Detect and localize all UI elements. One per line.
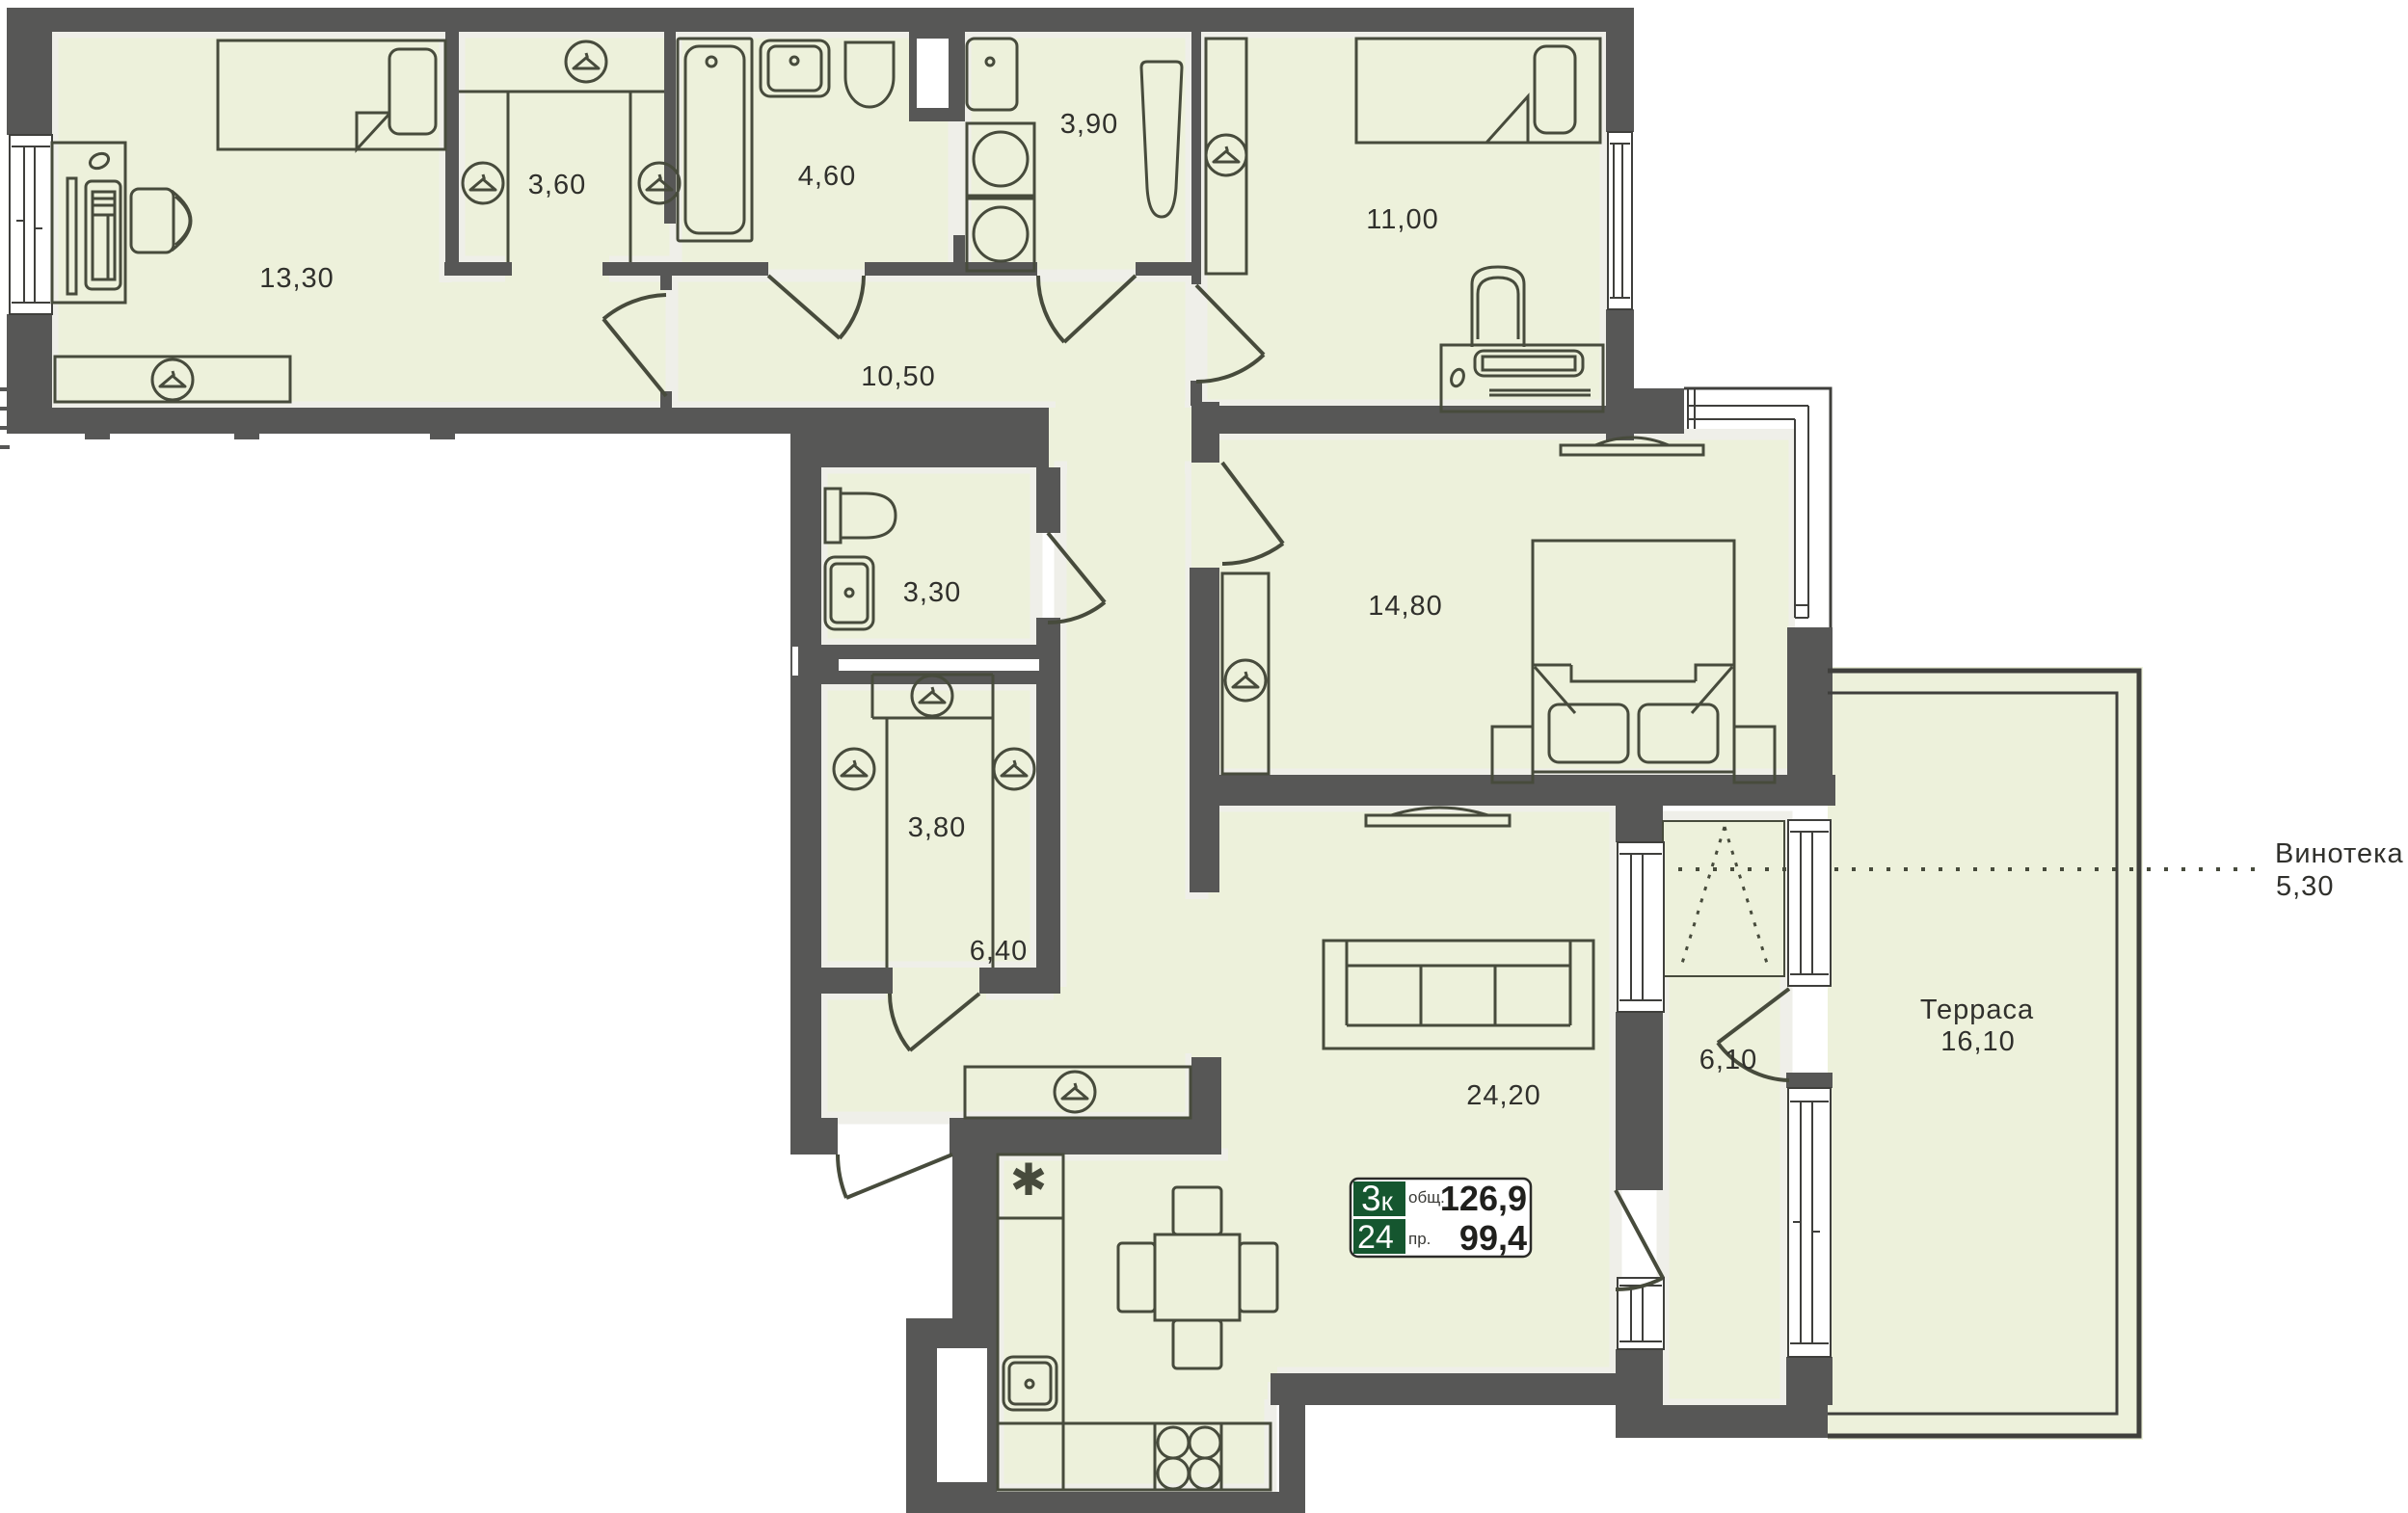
- svg-text:3,80: 3,80: [908, 812, 966, 843]
- svg-text:3,60: 3,60: [528, 170, 586, 200]
- svg-text:5,30: 5,30: [2276, 871, 2334, 902]
- svg-text:126,9: 126,9: [1440, 1179, 1527, 1218]
- svg-text:✱: ✱: [1010, 1155, 1048, 1205]
- svg-text:24,20: 24,20: [1466, 1080, 1541, 1111]
- svg-text:3,90: 3,90: [1060, 109, 1118, 140]
- svg-text:6,10: 6,10: [1699, 1045, 1757, 1075]
- svg-text:пр.: пр.: [1408, 1230, 1431, 1248]
- svg-text:Винотека: Винотека: [2275, 838, 2404, 869]
- svg-text:10,50: 10,50: [861, 361, 936, 392]
- svg-text:14,80: 14,80: [1368, 591, 1443, 622]
- svg-text:4,60: 4,60: [798, 161, 856, 192]
- svg-text:11,00: 11,00: [1366, 204, 1438, 235]
- svg-text:3,30: 3,30: [903, 577, 961, 608]
- svg-text:13,30: 13,30: [259, 263, 334, 294]
- svg-text:Терраса: Терраса: [1920, 995, 2034, 1025]
- svg-text:24: 24: [1357, 1219, 1394, 1256]
- svg-text:16,10: 16,10: [1940, 1026, 2016, 1057]
- svg-text:99,4: 99,4: [1459, 1218, 1527, 1258]
- svg-text:6,40: 6,40: [970, 936, 1028, 967]
